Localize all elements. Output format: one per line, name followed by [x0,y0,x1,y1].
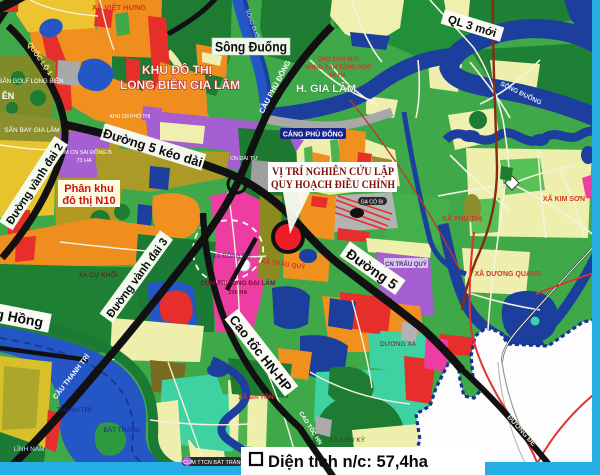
svg-text:ÊN: ÊN [2,90,15,101]
svg-text:BÁT TRÀNG: BÁT TRÀNG [104,425,141,434]
svg-text:LONG BIÊN GIA LÂM: LONG BIÊN GIA LÂM [120,77,240,92]
svg-text:Diện tích n/c: 57,4ha: Diện tích n/c: 57,4ha [268,452,429,471]
svg-text:KHU CN PHỐ THỊ: KHU CN PHỐ THỊ [110,113,151,120]
svg-text:CỤM TTCN BÁT TRÀNG: CỤM TTCN BÁT TRÀNG [183,459,244,466]
svg-text:Sông Đuống: Sông Đuống [215,39,287,55]
svg-text:SÂN BAY GIA LÂM: SÂN BAY GIA LÂM [4,125,59,134]
svg-text:H. GIA LÂM: H. GIA LÂM [296,82,356,95]
svg-text:CỤM TRƯỜNG ĐẠI LÂM: CỤM TRƯỜNG ĐẠI LÂM [201,278,276,287]
svg-text:VỊ TRÍ NGHIÊN CỨU LẬP: VỊ TRÍ NGHIÊN CỨU LẬP [272,164,394,178]
svg-text:CN ĐÀI TƯ: CN ĐÀI TƯ [230,155,258,162]
svg-text:CN TRÂU QUỲ: CN TRÂU QUỲ [385,261,427,268]
svg-text:CẢNG PHÙ ĐỔNG: CẢNG PHÙ ĐỔNG [283,130,344,139]
svg-text:XÃ DƯƠNG QUANG: XÃ DƯƠNG QUANG [474,269,542,278]
svg-text:THANH TRÌ: THANH TRÌ [57,405,92,414]
svg-text:XÃ PHÙ THỊ: XÃ PHÙ THỊ [442,214,482,223]
svg-text:50 HA: 50 HA [329,73,347,79]
svg-text:GA CỔ BI: GA CỔ BI [361,199,384,206]
svg-text:CỤM CN SÀI ĐỒNG B: CỤM CN SÀI ĐỒNG B [56,149,112,156]
svg-text:DƯƠNG XÁ: DƯƠNG XÁ [380,339,417,348]
svg-text:Phân khu: Phân khu [64,183,114,195]
svg-text:XÃ VIỆT HƯNG: XÃ VIỆT HƯNG [92,3,146,12]
svg-text:KHU ĐÔ THỊ: KHU ĐÔ THỊ [142,62,212,77]
svg-text:đô thị N10: đô thị N10 [62,195,115,207]
svg-text:QUY HOẠCH ĐIỀU CHỈNH: QUY HOẠCH ĐIỀU CHỈNH [271,176,395,191]
svg-text:LĨNH NAM: LĨNH NAM [13,444,44,453]
svg-text:CHỢ ĐẦU MỐI: CHỢ ĐẦU MỐI [317,56,359,63]
svg-text:73 HA: 73 HA [76,158,92,164]
svg-text:250 HA: 250 HA [229,290,248,296]
svg-text:NÔNG SẢN TỔNG HỢP: NÔNG SẢN TỔNG HỢP [305,63,371,71]
svg-text:XÃ ĐÔNG DƯ: XÃ ĐÔNG DƯ [213,253,252,260]
svg-text:SÂN GOLF LONG BIÊN: SÂN GOLF LONG BIÊN [0,77,63,85]
svg-text:XÃ KIÊU KỲ: XÃ KIÊU KỲ [329,435,366,444]
svg-text:XÃ KIM SƠN: XÃ KIM SƠN [543,194,585,203]
